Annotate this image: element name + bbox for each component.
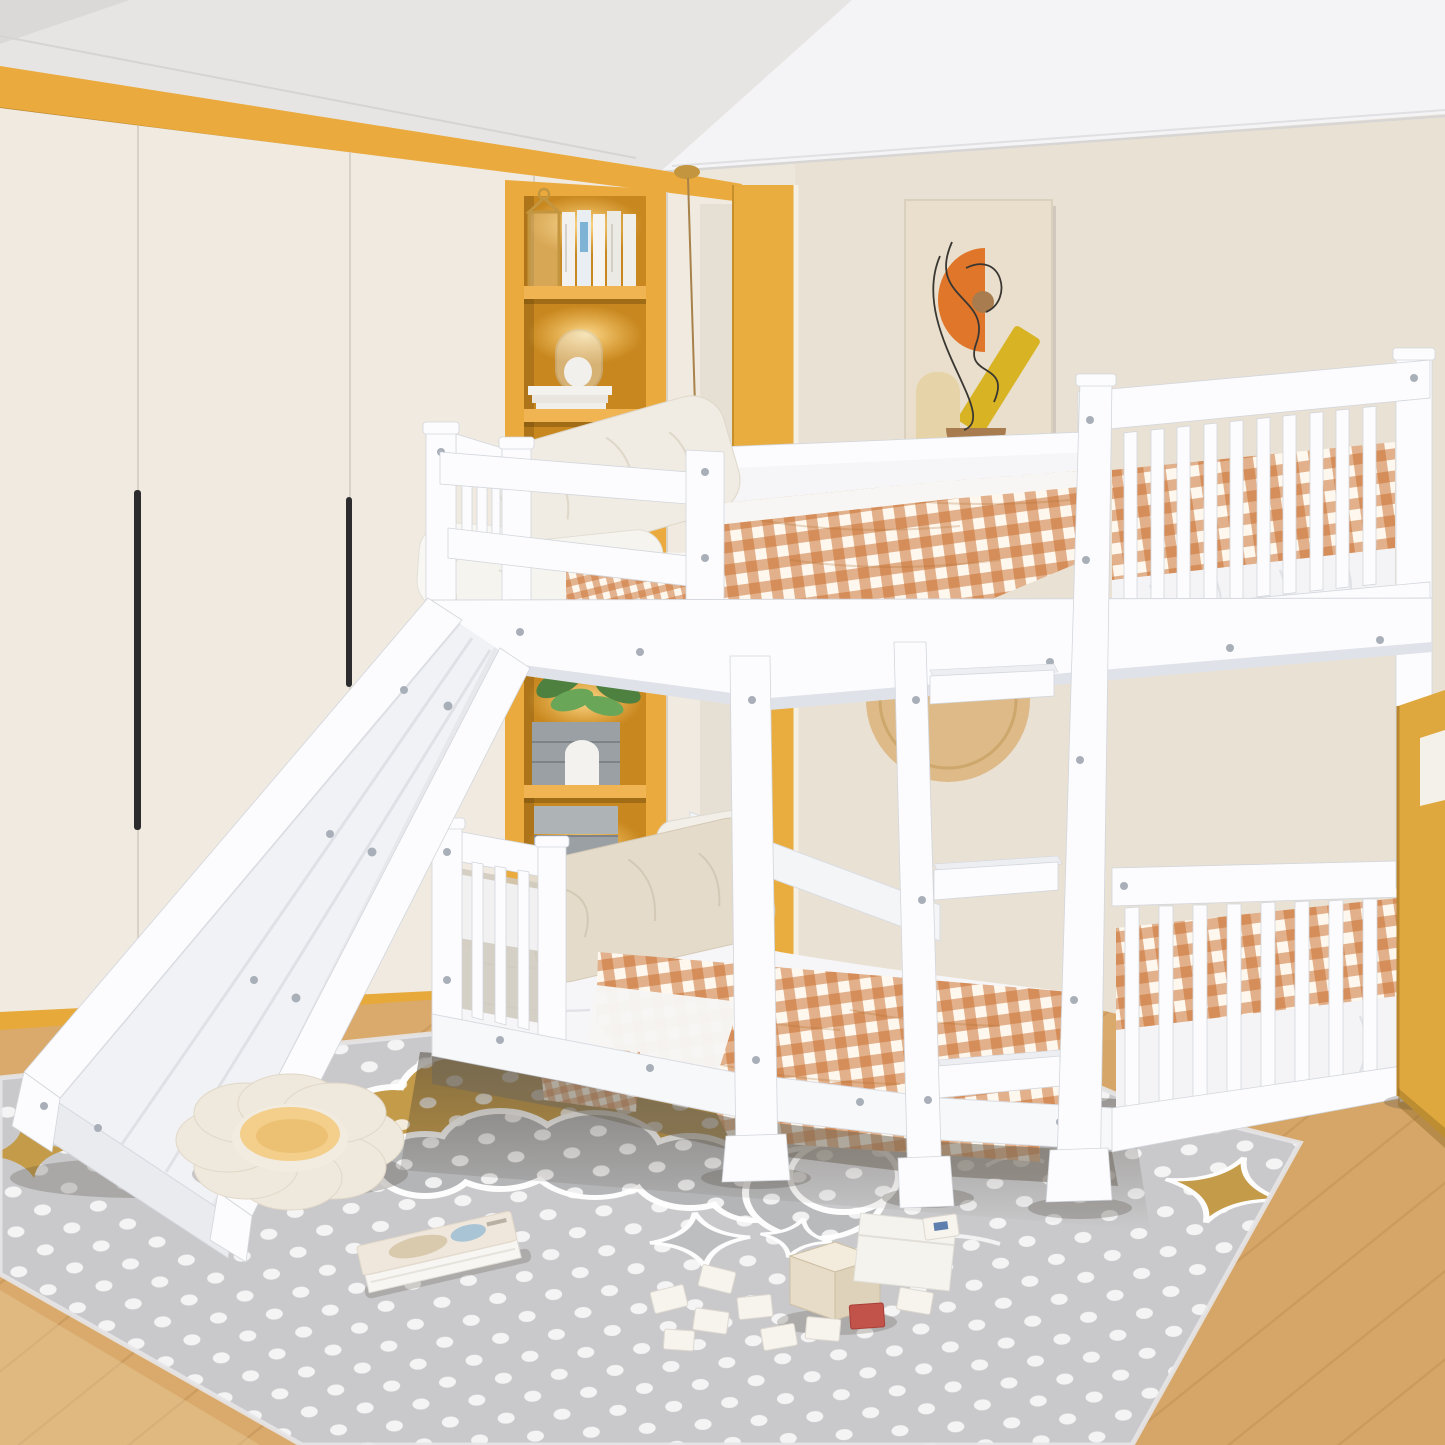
bedroom-photo xyxy=(0,0,1445,1445)
